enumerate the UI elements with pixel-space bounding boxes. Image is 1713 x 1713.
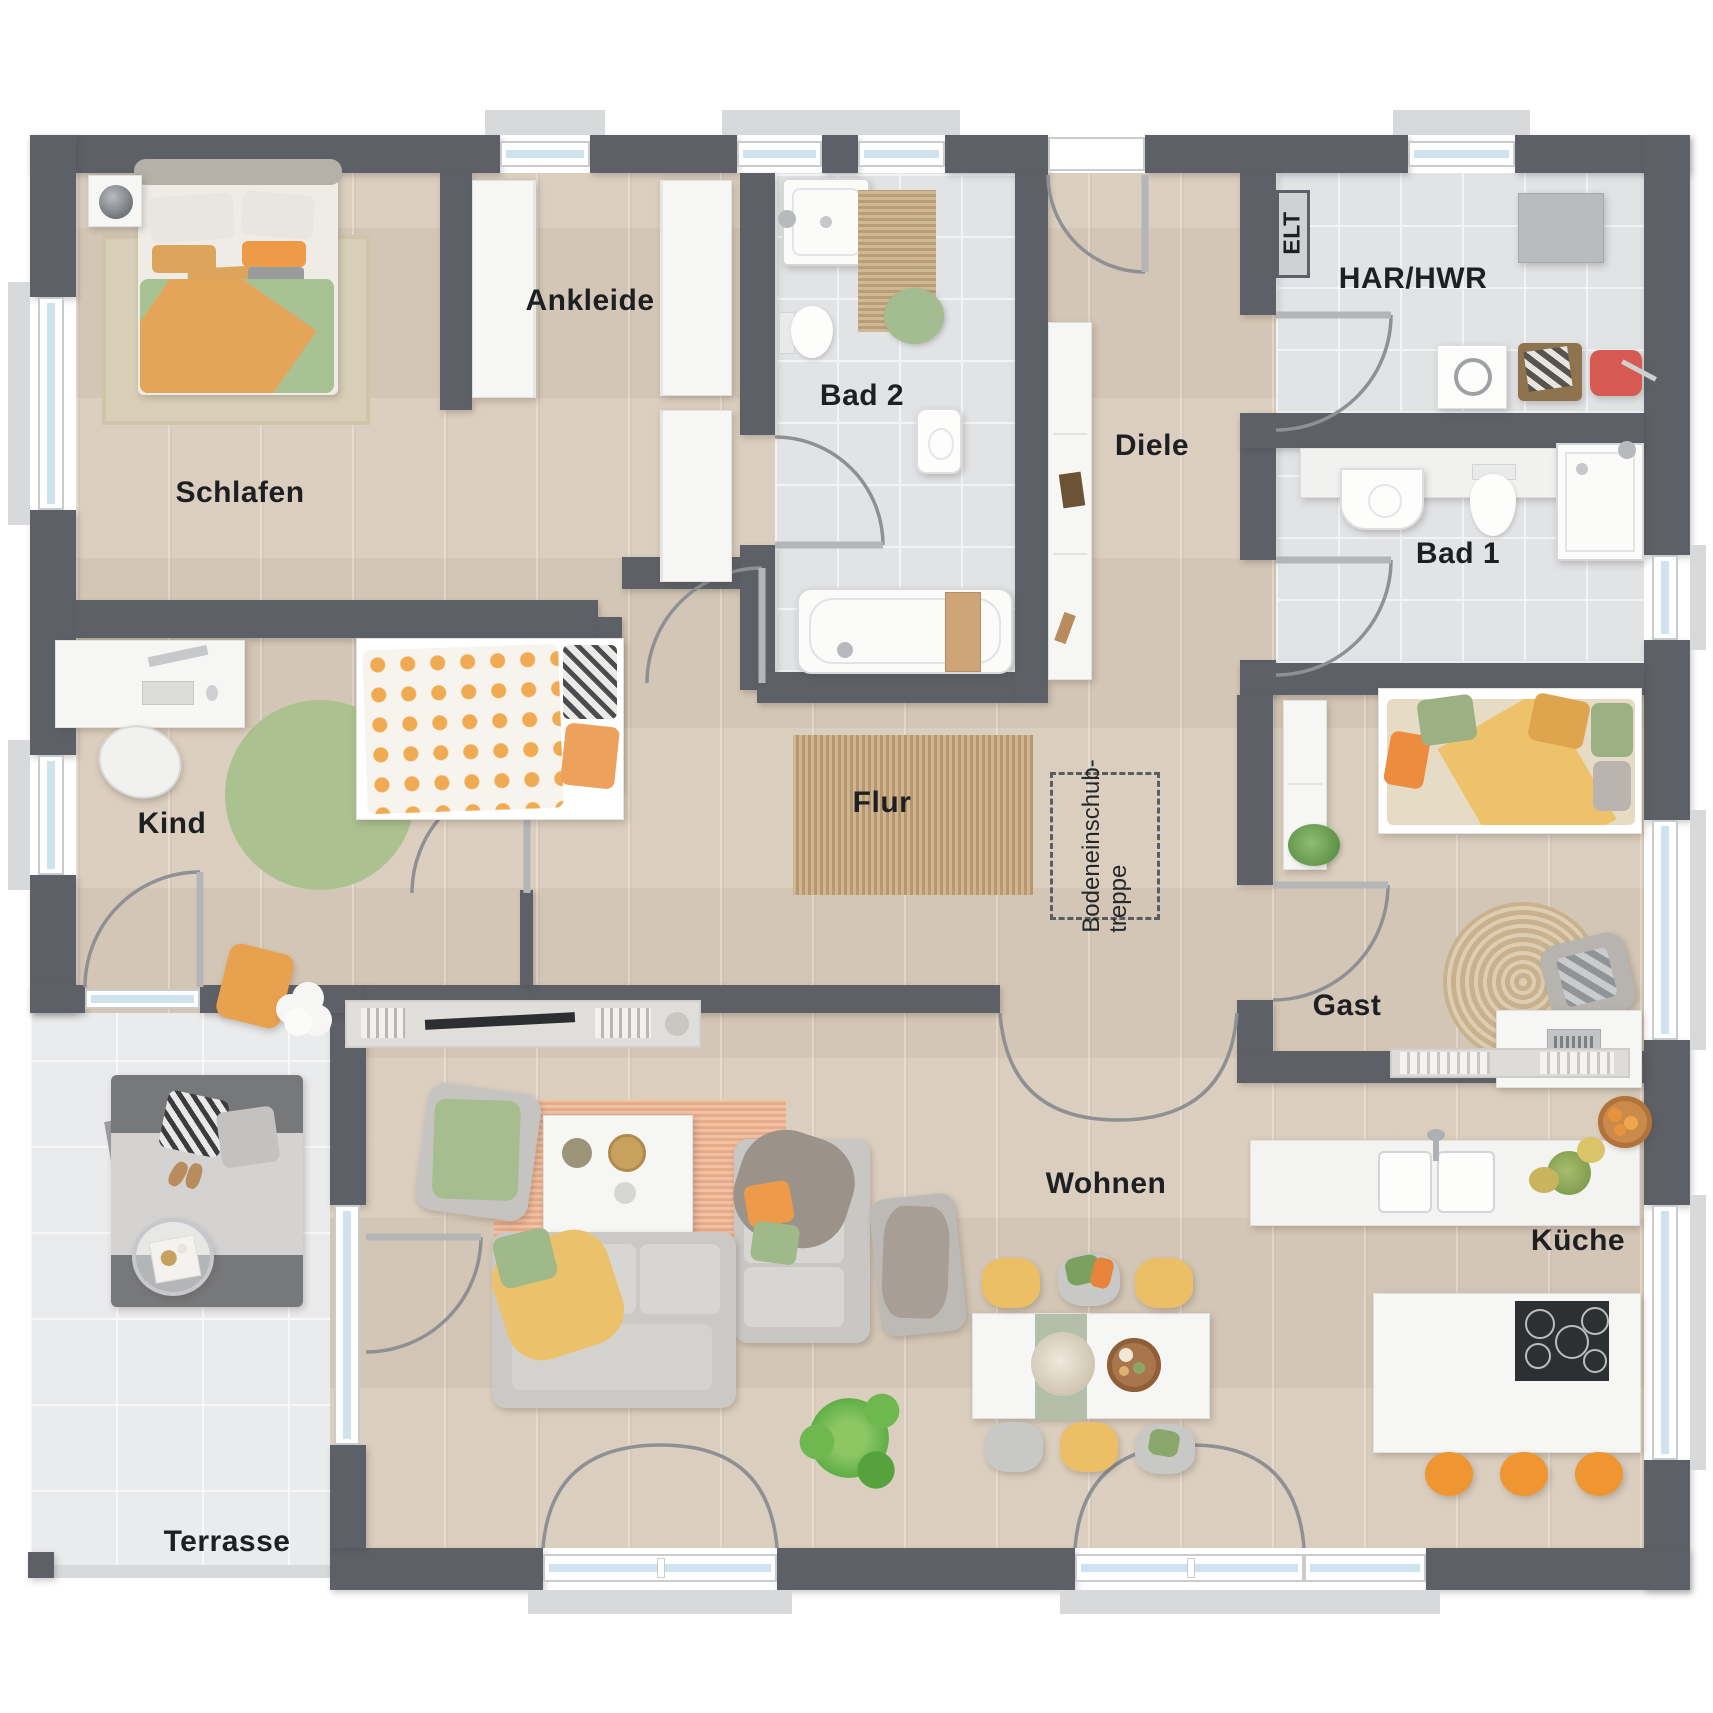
bathtub-caddy xyxy=(945,592,981,672)
attic-stairs-label: Bodeneinschub- treppe xyxy=(1079,759,1133,932)
shower-drain xyxy=(1576,463,1588,475)
glass-door-kind-terrasse xyxy=(85,989,200,1009)
window-har xyxy=(1408,141,1515,167)
washbasin xyxy=(1340,468,1424,530)
shower xyxy=(782,178,870,266)
sofa xyxy=(734,1139,870,1343)
window-sill xyxy=(1393,110,1530,135)
room-label-flur: Flur xyxy=(853,786,912,820)
room-label-bad1: Bad 1 xyxy=(1416,537,1500,571)
gast-bed xyxy=(1378,688,1642,834)
room-label-bad2: Bad 2 xyxy=(820,379,904,413)
wall xyxy=(330,1548,543,1590)
wall xyxy=(1145,135,1408,173)
french-door-wohnen-1 xyxy=(543,1554,777,1582)
cleaning-basket xyxy=(1590,350,1642,396)
toilet xyxy=(779,306,833,358)
french-door-wohnen-2 xyxy=(1075,1554,1304,1582)
bed-headboard xyxy=(134,159,342,185)
kitchen-sink xyxy=(1378,1151,1432,1213)
corner-shelf xyxy=(88,175,142,227)
dining-chair-gray xyxy=(1058,1254,1120,1306)
kitchen-sink xyxy=(1437,1151,1495,1213)
wall xyxy=(822,135,858,173)
wall xyxy=(76,600,598,638)
room-label-ankleide: Ankleide xyxy=(525,284,654,318)
shower-drain xyxy=(820,216,832,228)
kind-duvet-dotted xyxy=(362,644,564,815)
wall xyxy=(590,135,737,173)
armchair xyxy=(413,1081,544,1224)
window-kind xyxy=(38,755,64,875)
room-label-har-hwr: HAR/HWR xyxy=(1339,262,1487,296)
desk-mouse xyxy=(206,685,218,701)
wall xyxy=(1426,1548,1690,1590)
tv xyxy=(425,1012,575,1030)
desk-monitor xyxy=(148,645,209,667)
wall xyxy=(1237,1000,1273,1051)
room-label-elt: ELT xyxy=(1279,211,1306,254)
pillow-gray xyxy=(215,1105,280,1169)
glass-door-wohnen-terrasse xyxy=(334,1205,360,1445)
window-sill xyxy=(485,110,605,135)
room-label-diele: Diele xyxy=(1115,429,1189,463)
fruit-bowl xyxy=(1598,1096,1652,1148)
armchair xyxy=(868,1192,968,1338)
shower-head xyxy=(1618,441,1636,459)
window-sill xyxy=(8,740,30,890)
wall xyxy=(30,135,76,297)
room-label-terrasse: Terrasse xyxy=(164,1525,291,1559)
floor-plan: Bodeneinschub- treppe Schlafen Ankleide … xyxy=(0,0,1713,1713)
kitchen-faucet-base xyxy=(1427,1129,1445,1141)
kind-flower-table xyxy=(276,982,332,1038)
bar-stool-orange xyxy=(1500,1452,1548,1496)
kind-desk xyxy=(55,640,245,728)
gast-pillow-green xyxy=(1416,693,1478,746)
window-bad2-b xyxy=(858,141,945,167)
shoes xyxy=(1054,612,1076,644)
wall-lamp-dome xyxy=(99,185,133,219)
plant xyxy=(1288,824,1340,866)
kitchen-counter xyxy=(1250,1140,1640,1226)
toilet xyxy=(1464,464,1522,538)
window-gast xyxy=(1652,820,1678,1040)
window-sill xyxy=(1060,1590,1440,1614)
dining-chair-gray xyxy=(985,1422,1043,1472)
shower xyxy=(1556,443,1644,561)
cooktop xyxy=(1515,1301,1609,1381)
plaid-pillow xyxy=(1556,947,1619,1008)
window-sill xyxy=(1690,545,1706,650)
flur-jute-rug xyxy=(793,735,1033,895)
tv-sideboard xyxy=(345,1000,701,1048)
washbasin xyxy=(916,408,962,474)
dining-chair-gray xyxy=(1135,1424,1195,1474)
wall xyxy=(440,173,472,410)
kind-pillow-orange xyxy=(560,722,620,789)
kind-bed xyxy=(356,638,624,820)
bed-pillow-orange xyxy=(242,241,306,267)
fruit-bowl xyxy=(1107,1338,1161,1392)
desk-keyboard xyxy=(142,681,194,705)
wall xyxy=(1015,173,1048,703)
wall xyxy=(1240,173,1276,315)
utility-appliance xyxy=(1518,193,1604,263)
wardrobe xyxy=(660,180,732,396)
towel-green xyxy=(884,288,944,344)
throw-green xyxy=(432,1098,521,1201)
attic-stairs-label-line2: treppe xyxy=(1106,759,1133,932)
glass-side-table xyxy=(132,1218,214,1296)
bathtub-faucet xyxy=(837,642,853,658)
bathtub xyxy=(797,588,1013,674)
room-label-kind: Kind xyxy=(138,807,207,841)
window-schlafen xyxy=(38,297,64,510)
window-sill xyxy=(722,110,960,135)
room-label-wohnen: Wohnen xyxy=(1046,1167,1167,1201)
bed-throw-orange xyxy=(140,279,317,393)
tray xyxy=(608,1134,646,1172)
attic-stairs-label-line1: Bodeneinschub- xyxy=(1079,759,1106,932)
terrasse-edge xyxy=(30,1565,330,1578)
bar-stool-orange xyxy=(1425,1452,1473,1496)
entry-door-threshold xyxy=(1048,137,1145,171)
dining-chair-yellow xyxy=(982,1258,1040,1308)
wall xyxy=(740,173,775,435)
gast-pillow-green xyxy=(1591,703,1633,757)
window-kueche xyxy=(1652,1205,1678,1460)
wall xyxy=(777,1548,1075,1590)
wall xyxy=(740,545,775,690)
window-sill xyxy=(8,282,30,525)
window-ankleide xyxy=(500,141,590,167)
potted-plant xyxy=(795,1388,903,1492)
wall xyxy=(30,985,85,1013)
drape xyxy=(881,1205,951,1319)
pillow-green xyxy=(749,1220,800,1266)
window-bad1 xyxy=(1652,555,1678,640)
room-label-kueche: Küche xyxy=(1531,1224,1625,1258)
wall xyxy=(757,672,1015,703)
laundry-basket xyxy=(1518,343,1582,401)
bed-duvet-green xyxy=(140,279,334,393)
washing-machine xyxy=(1437,345,1507,409)
wall xyxy=(1644,640,1690,820)
bag xyxy=(1059,472,1086,509)
dining-table xyxy=(972,1313,1210,1419)
wall xyxy=(1237,695,1273,885)
wall xyxy=(330,1445,366,1548)
wall xyxy=(1644,135,1690,555)
window-essbereich xyxy=(1304,1554,1426,1582)
kind-pillow-striped xyxy=(563,645,617,719)
shower-head xyxy=(778,210,796,228)
window-sill xyxy=(528,1590,792,1614)
bar-stool-orange xyxy=(1575,1452,1623,1496)
window-sill xyxy=(1690,810,1706,1050)
room-label-gast: Gast xyxy=(1313,989,1382,1023)
wall xyxy=(520,890,533,985)
napkin-green xyxy=(1147,1428,1181,1459)
dining-chair-yellow xyxy=(1060,1422,1118,1472)
tray xyxy=(149,1234,202,1283)
bed-pillow xyxy=(148,192,235,244)
kitchen-island xyxy=(1373,1293,1641,1453)
coffee-table xyxy=(543,1115,693,1235)
flower-bouquet xyxy=(1031,1332,1095,1396)
window-sill xyxy=(1690,1195,1706,1470)
flower-vase xyxy=(1523,1127,1611,1219)
window-bad2-a xyxy=(737,141,822,167)
gast-bookshelf xyxy=(1390,1048,1630,1078)
room-label-schlafen: Schlafen xyxy=(175,476,304,510)
dining-chair-yellow xyxy=(1135,1258,1193,1308)
gast-pillow-gray xyxy=(1593,761,1631,811)
double-bed xyxy=(138,165,338,395)
wardrobe xyxy=(660,410,732,582)
sofa xyxy=(492,1232,736,1408)
dried-plant xyxy=(562,1138,592,1168)
bed-pillow xyxy=(240,190,316,240)
wall xyxy=(945,135,1048,173)
hallway-closet xyxy=(1048,322,1092,680)
terrasse-post xyxy=(28,1552,54,1578)
